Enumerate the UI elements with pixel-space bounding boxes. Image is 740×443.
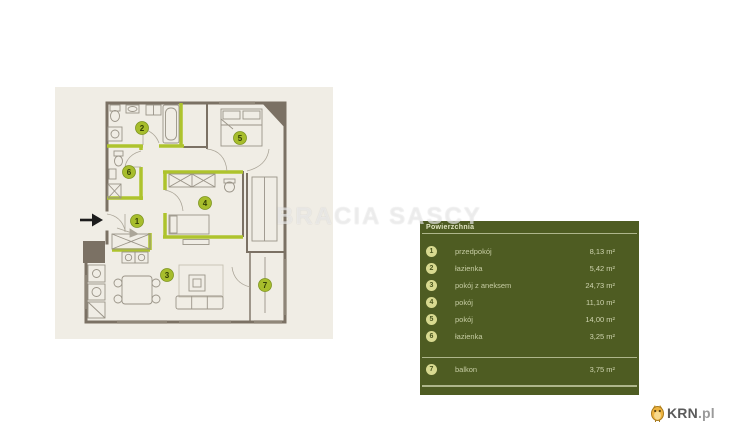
room-6-marker: 6 [123, 166, 136, 179]
room-area: 3,75 m² [590, 365, 615, 374]
agency-watermark: BRACIA SASCY [276, 203, 482, 231]
room-label: łazienka [455, 264, 590, 273]
room-7-marker: 7 [259, 279, 272, 292]
room-badge: 7 [426, 364, 437, 375]
room-area: 3,25 m² [590, 332, 615, 341]
room-area: 8,13 m² [590, 247, 615, 256]
room-area: 24,73 m² [585, 281, 615, 290]
svg-text:1: 1 [135, 217, 140, 226]
room-label: przedpokój [455, 247, 590, 256]
room-badge: 3 [426, 280, 437, 291]
room-3-marker: 3 [161, 269, 174, 282]
wall-corner-block [83, 241, 105, 263]
area-row-4: 4 pokój 11,10 m² [426, 294, 615, 311]
room-area: 5,42 m² [590, 264, 615, 273]
krn-logo-text: KRN.pl [667, 405, 715, 421]
room-1-marker: 1 [131, 215, 144, 228]
room-label: pokój [455, 315, 585, 324]
area-row-5: 5 pokój 14,00 m² [426, 311, 615, 328]
krn-logo-icon [650, 404, 665, 422]
area-legend-panel: Powierzchnia 1 przedpokój 8,13 m² 2 łazi… [420, 221, 639, 395]
svg-text:3: 3 [165, 271, 170, 280]
room-badge: 6 [426, 331, 437, 342]
room-label: balkon [455, 365, 590, 374]
room-2-marker: 2 [136, 122, 149, 135]
area-row-2: 2 łazienka 5,42 m² [426, 260, 615, 277]
room-area: 14,00 m² [585, 315, 615, 324]
room-label: łazienka [455, 332, 590, 341]
area-row-1: 1 przedpokój 8,13 m² [426, 243, 615, 260]
room-badge: 5 [426, 314, 437, 325]
svg-text:6: 6 [127, 168, 132, 177]
room-badge: 1 [426, 246, 437, 257]
room-4-marker: 4 [199, 197, 212, 210]
room-label: pokój [455, 298, 586, 307]
area-row-7: 7 balkon 3,75 m² [426, 361, 615, 378]
outer-walls [86, 103, 285, 322]
panel-bottom-line [422, 385, 637, 387]
svg-text:7: 7 [263, 281, 268, 290]
area-row-6: 6 łazienka 3,25 m² [426, 328, 615, 345]
entrance-arrow-icon [80, 214, 103, 227]
svg-text:4: 4 [203, 199, 208, 208]
room-area: 11,10 m² [586, 298, 615, 307]
area-row-3: 3 pokój z aneksem 24,73 m² [426, 277, 615, 294]
room-badge: 4 [426, 297, 437, 308]
room-label: pokój z aneksem [455, 281, 585, 290]
wall-diagonal-block [261, 102, 286, 129]
room-badge: 2 [426, 263, 437, 274]
room-5-marker: 5 [234, 132, 247, 145]
krn-logo: KRN.pl [650, 404, 715, 422]
svg-text:2: 2 [140, 124, 145, 133]
svg-text:5: 5 [238, 134, 243, 143]
area-rows: 1 przedpokój 8,13 m² 2 łazienka 5,42 m² … [420, 234, 639, 345]
